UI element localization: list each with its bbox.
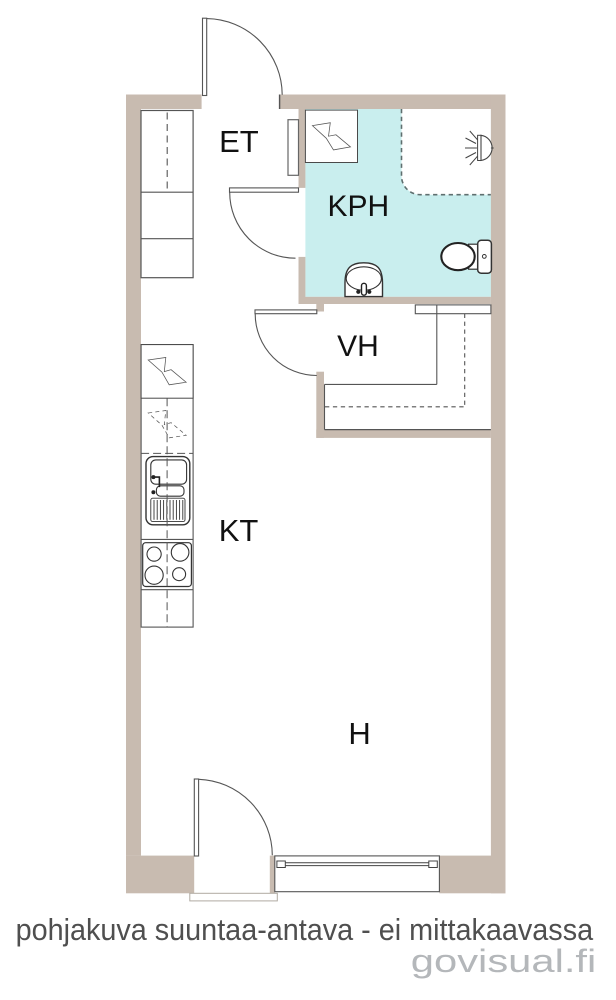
svg-text:govisual.fi: govisual.fi: [411, 943, 597, 979]
svg-text:VH: VH: [337, 330, 379, 363]
svg-text:KT: KT: [219, 513, 259, 548]
svg-text:pohjakuva suuntaa-antava - ei: pohjakuva suuntaa-antava - ei mittakaava…: [16, 912, 594, 947]
svg-text:H: H: [348, 716, 370, 751]
svg-text:ET: ET: [219, 124, 259, 159]
svg-text:KPH: KPH: [327, 190, 389, 223]
